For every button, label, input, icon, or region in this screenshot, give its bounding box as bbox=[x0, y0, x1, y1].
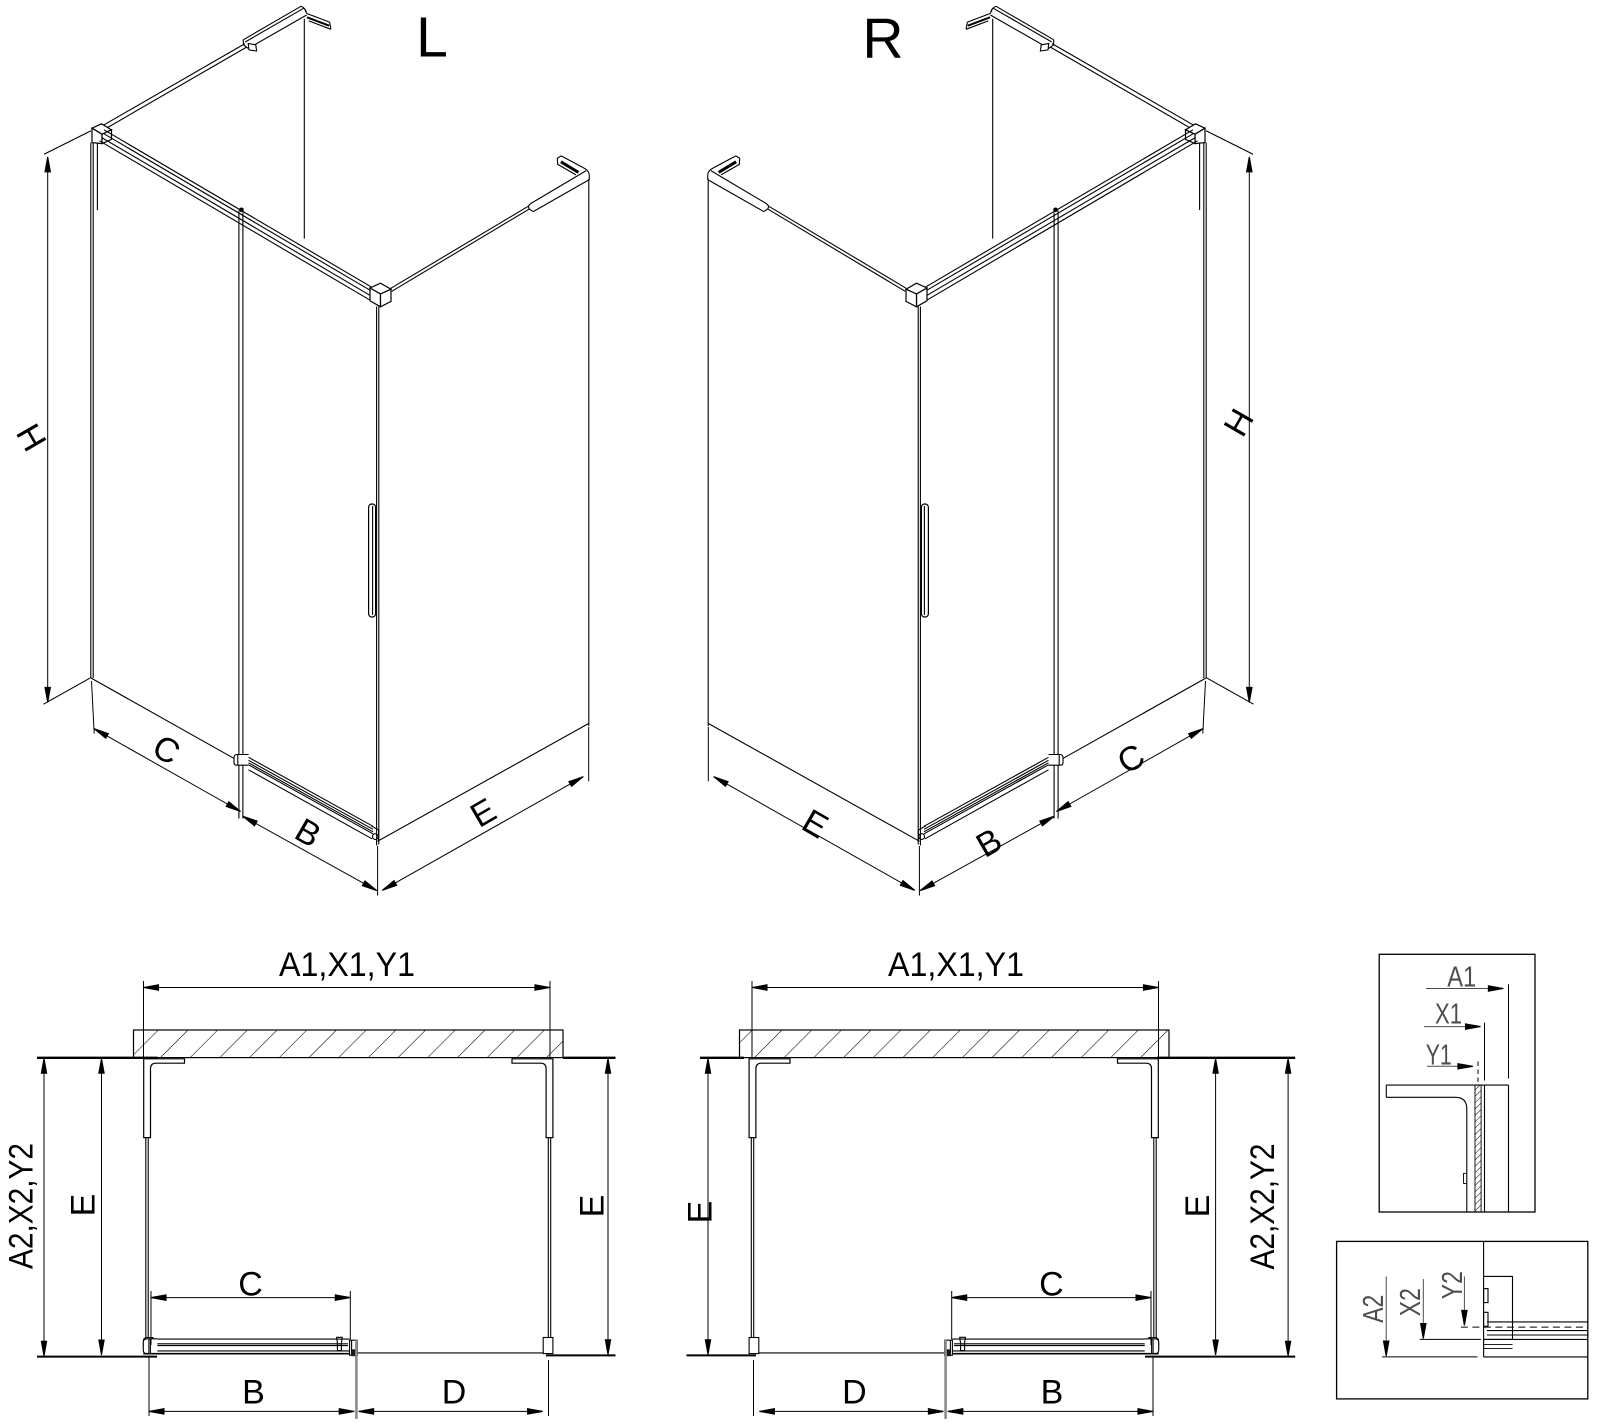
svg-text:B: B bbox=[242, 1374, 265, 1412]
svg-text:A2,X2,Y2: A2,X2,Y2 bbox=[1244, 1144, 1282, 1270]
svg-text:D: D bbox=[442, 1374, 467, 1412]
svg-text:C: C bbox=[1039, 1266, 1064, 1304]
svg-text:X1: X1 bbox=[1435, 999, 1462, 1031]
svg-text:X2: X2 bbox=[1395, 1288, 1427, 1316]
svg-text:A1,X1,Y1: A1,X1,Y1 bbox=[888, 946, 1024, 984]
svg-text:B: B bbox=[1041, 1374, 1064, 1412]
svg-text:A2: A2 bbox=[1358, 1295, 1390, 1323]
svg-text:A2,X2,Y2: A2,X2,Y2 bbox=[2, 1143, 40, 1269]
svg-text:E: E bbox=[1179, 1195, 1217, 1218]
svg-text:A1,X1,Y1: A1,X1,Y1 bbox=[279, 946, 415, 984]
svg-text:E: E bbox=[64, 1194, 102, 1217]
svg-text:E: E bbox=[573, 1195, 611, 1218]
svg-text:R: R bbox=[862, 7, 903, 71]
svg-text:C: C bbox=[238, 1266, 263, 1304]
svg-text:L: L bbox=[416, 6, 448, 70]
svg-text:E: E bbox=[681, 1201, 719, 1224]
svg-text:D: D bbox=[842, 1374, 867, 1412]
